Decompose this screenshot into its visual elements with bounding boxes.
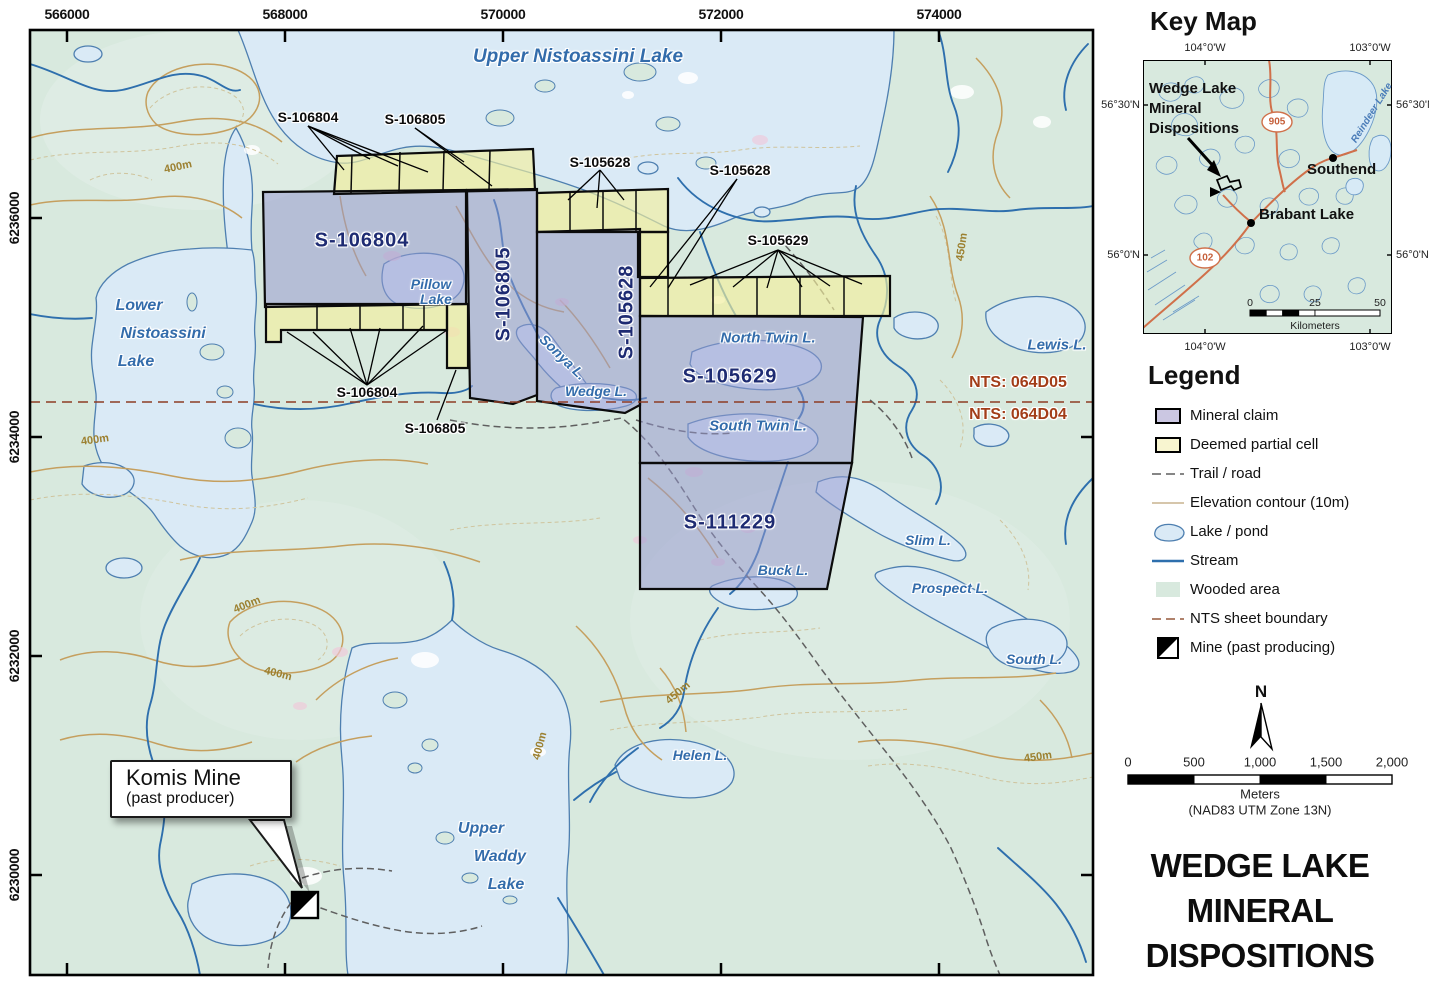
keymap-title: Key Map — [1150, 6, 1257, 37]
nts-boundary-line-icon — [1151, 616, 1185, 622]
legend-item-trail: Trail / road — [1146, 459, 1429, 488]
map-title-line: WEDGE LAKE — [1100, 843, 1420, 888]
claim-label-s106804: S-106804 — [315, 230, 410, 253]
lake-label-south-twin: South Twin L. — [709, 418, 807, 435]
shield-905-label: 905 — [1269, 117, 1286, 128]
wooded-area-swatch — [1156, 582, 1180, 597]
legend-item-lake: Lake / pond — [1146, 517, 1429, 546]
map-title-line: MINERAL — [1100, 888, 1420, 933]
top-axis-label: 568000 — [263, 6, 308, 22]
contour-line-icon — [1151, 500, 1185, 506]
legend-item-mineral-claim: Mineral claim — [1146, 401, 1429, 430]
keymap-annotation: Dispositions — [1149, 120, 1239, 137]
lake-label-lower-nistoassini: Lake — [118, 353, 154, 371]
keymap-scale-50: 50 — [1374, 297, 1386, 309]
legend-label: Wooded area — [1190, 581, 1280, 598]
legend: Legend Mineral claim Deemed partial cell… — [1146, 360, 1429, 662]
lake-upper-waddy — [340, 620, 570, 975]
lake-label-helen: Helen L. — [673, 747, 727, 763]
lake-label-lewis: Lewis L. — [1027, 337, 1086, 354]
scalebar-tick-label: 2,000 — [1376, 755, 1409, 770]
legend-label: Elevation contour (10m) — [1190, 494, 1349, 511]
left-axis-label: 6236000 — [6, 192, 22, 244]
claim-label-s105629: S-105629 — [683, 366, 778, 389]
map-title-line: DISPOSITIONS — [1100, 933, 1420, 978]
scalebar-unit: Meters — [1240, 787, 1280, 802]
scalebar-tick-label: 1,500 — [1310, 755, 1343, 770]
top-axis-label: 574000 — [917, 6, 962, 22]
legend-item-nts-boundary: NTS sheet boundary — [1146, 604, 1429, 633]
keymap-brabant-dot — [1247, 219, 1255, 227]
scalebar-tick-label: 1,000 — [1244, 755, 1277, 770]
callout-title: Komis Mine — [126, 766, 290, 790]
lake-label-upper-waddy: Lake — [488, 876, 524, 894]
lake-label-upper-nistoassini: Upper Nistoassini Lake — [473, 46, 683, 68]
nts-label-top: NTS: 064D05 — [969, 374, 1067, 392]
legend-item-contour: Elevation contour (10m) — [1146, 488, 1429, 517]
leader-label: S-106805 — [385, 111, 446, 127]
keymap-scale-unit: Kilometers — [1290, 320, 1340, 332]
scalebar-tick-label: 500 — [1183, 755, 1205, 770]
keymap-scale-0: 0 — [1247, 297, 1253, 309]
legend-label: NTS sheet boundary — [1190, 610, 1328, 627]
lake-label-wedge: Wedge L. — [565, 383, 627, 399]
scalebar-datum: (NAD83 UTM Zone 13N) — [1188, 803, 1331, 818]
komis-mine-callout: Komis Mine (past producer) — [110, 760, 292, 818]
scalebar-tick-label: 0 — [1124, 755, 1131, 770]
lake-label-pillow: Pillow — [411, 276, 451, 292]
claim-label-s106805: S-106805 — [493, 247, 516, 342]
keymap-lat-label: 56°30'N — [1101, 99, 1140, 111]
lake-label-slim: Slim L. — [905, 532, 951, 548]
keymap-lon-label: 103°0'W — [1349, 42, 1390, 54]
trail-line-icon — [1151, 471, 1185, 477]
map-title: WEDGE LAKE MINERAL DISPOSITIONS — [1100, 843, 1420, 978]
shield-102-label: 102 — [1197, 253, 1214, 264]
legend-item-wooded: Wooded area — [1146, 575, 1429, 604]
leader-label: S-105628 — [570, 154, 631, 170]
mineral-claim-swatch — [1155, 408, 1181, 424]
top-axis-label: 570000 — [481, 6, 526, 22]
lake-pond-icon — [1149, 521, 1187, 543]
north-arrow-icon — [1245, 702, 1277, 754]
left-axis-label: 6232000 — [6, 630, 22, 682]
legend-label: Deemed partial cell — [1190, 436, 1318, 453]
lake-label-lower-nistoassini: Lower — [115, 297, 162, 315]
mine-icon — [1157, 637, 1179, 659]
legend-item-stream: Stream — [1146, 546, 1429, 575]
leader-label: S-106804 — [337, 384, 398, 400]
claim-label-s111229: S-111229 — [684, 512, 777, 535]
lake-label-upper-waddy: Upper — [458, 820, 504, 838]
lake-label-pillow: Lake — [420, 291, 452, 307]
keymap-town-southend: Southend — [1307, 161, 1376, 178]
legend-label: Stream — [1190, 552, 1238, 569]
keymap-lat-label: 56°0'N — [1396, 249, 1429, 261]
keymap-annotation: Mineral — [1149, 100, 1202, 117]
keymap-lat-label: 56°30'N — [1396, 99, 1429, 111]
top-axis-label: 572000 — [699, 6, 744, 22]
keymap-lon-label: 104°0'W — [1184, 341, 1225, 353]
legend-title: Legend — [1148, 360, 1429, 391]
lake-label-lower-nistoassini: Nistoassini — [120, 325, 205, 343]
legend-label: Mineral claim — [1190, 407, 1278, 424]
north-label: N — [1255, 682, 1267, 702]
lake-label-south: South L. — [1006, 651, 1062, 667]
keymap-annotation: Wedge Lake — [1149, 80, 1236, 97]
leader-label: S-106805 — [405, 420, 466, 436]
lake-label-north-twin: North Twin L. — [720, 330, 815, 347]
mine-symbol — [292, 892, 318, 918]
legend-label: Trail / road — [1190, 465, 1261, 482]
stream-line-icon — [1151, 558, 1185, 564]
legend-label: Lake / pond — [1190, 523, 1268, 540]
partial-cell-swatch — [1155, 437, 1181, 453]
leader-label: S-106804 — [278, 109, 339, 125]
left-axis-label: 6230000 — [6, 849, 22, 901]
callout-subtitle: (past producer) — [126, 790, 290, 808]
nts-label-bottom: NTS: 064D04 — [969, 406, 1067, 424]
top-axis-label: 566000 — [45, 6, 90, 22]
lake-label-prospect: Prospect L. — [912, 580, 988, 596]
keymap-lat-label: 56°0'N — [1107, 249, 1140, 261]
legend-item-partial-cell: Deemed partial cell — [1146, 430, 1429, 459]
scalebar — [1124, 773, 1400, 787]
claim-label-s105628: S-105628 — [616, 265, 639, 360]
leader-label: S-105629 — [748, 232, 809, 248]
lake-label-upper-waddy: Waddy — [474, 848, 526, 866]
keymap-scalebar — [1250, 310, 1380, 316]
leader-label: S-105628 — [710, 162, 771, 178]
legend-item-mine: Mine (past producing) — [1146, 633, 1429, 662]
keymap-lon-label: 104°0'W — [1184, 42, 1225, 54]
keymap-scale-25: 25 — [1309, 297, 1321, 309]
left-axis-label: 6234000 — [6, 411, 22, 463]
keymap-lon-label: 103°0'W — [1349, 341, 1390, 353]
legend-label: Mine (past producing) — [1190, 639, 1335, 656]
lake-label-buck: Buck L. — [758, 562, 809, 578]
keymap-town-brabant: Brabant Lake — [1259, 206, 1354, 223]
